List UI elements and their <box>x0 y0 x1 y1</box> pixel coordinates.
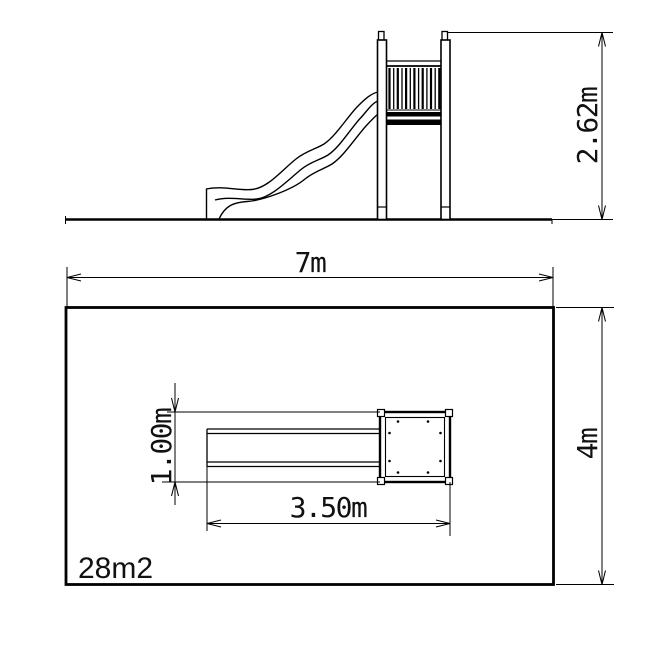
plan-depth-label: 4m <box>571 428 604 459</box>
platform-deck-band <box>387 120 442 126</box>
tower-railing <box>387 61 442 125</box>
bottom-rail-band <box>387 112 442 117</box>
plan-view: 7m 4m <box>66 246 614 585</box>
ground-line <box>65 216 613 224</box>
playground-slide-drawing: 2.62m <box>0 0 669 655</box>
height-dimension-label: 2.62m <box>571 87 604 164</box>
slide-profile-curves <box>206 92 378 220</box>
platform-footprint <box>378 410 453 485</box>
elevation-view: 2.62m <box>65 32 613 225</box>
dimension-height: 2.62m <box>447 33 613 220</box>
footprint-length-label: 3.50m <box>290 491 367 524</box>
right-post-cap <box>442 32 448 41</box>
safety-area-boundary <box>66 308 554 585</box>
slide-top-edge <box>206 92 378 190</box>
dimension-plan-depth: 4m <box>556 308 614 585</box>
left-post-cap <box>379 32 385 41</box>
plan-width-label: 7m <box>295 246 326 279</box>
slide-bottom-edge <box>219 114 378 219</box>
right-post <box>441 40 450 220</box>
area-label: 28m2 <box>78 552 153 585</box>
tower-posts <box>378 32 451 220</box>
footprint-width-label: 1.00m <box>145 408 178 485</box>
railing-balusters <box>390 68 440 109</box>
platform-outer <box>380 412 450 482</box>
left-post <box>378 40 387 220</box>
dimension-plan-width: 7m <box>67 246 553 308</box>
technical-drawing-sheet: 2.62m <box>0 0 669 655</box>
